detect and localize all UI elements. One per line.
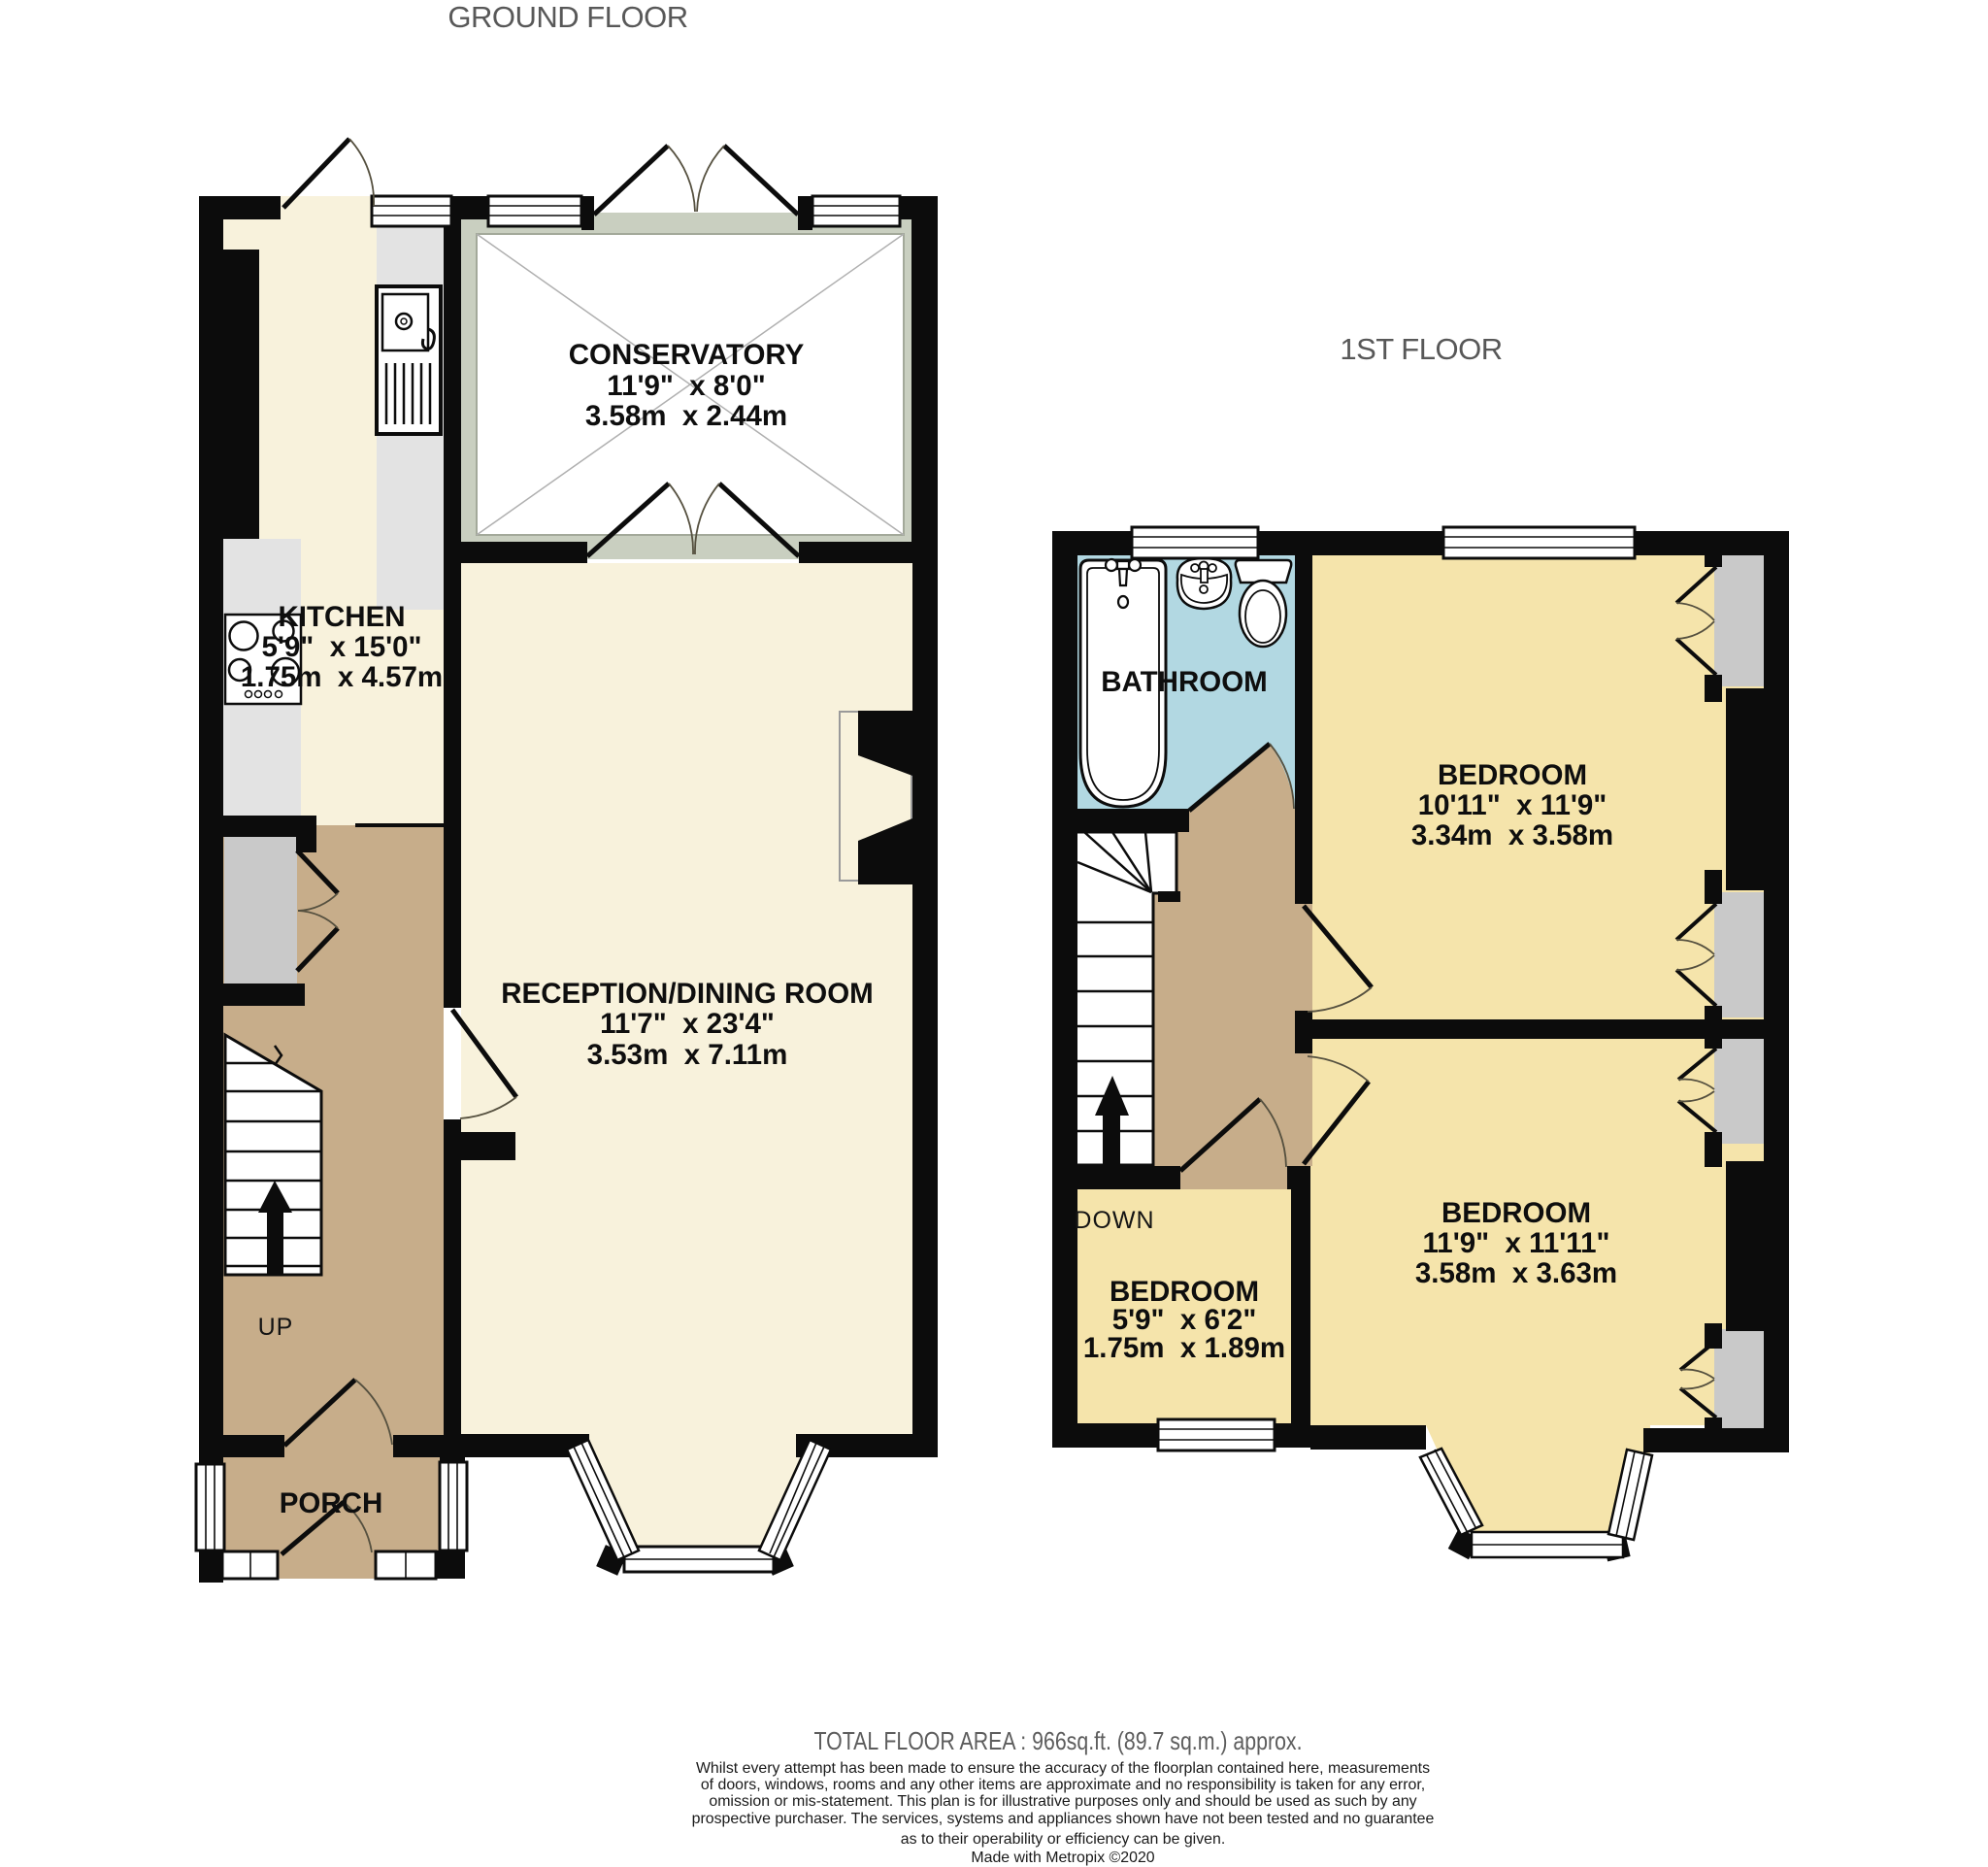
svg-text:1ST FLOOR: 1ST FLOOR [1340, 332, 1502, 366]
svg-text:11'9" x 8'0": 11'9" x 8'0" [607, 370, 765, 402]
svg-text:GROUND FLOOR: GROUND FLOOR [447, 0, 687, 34]
svg-text:1.75m x 1.89m: 1.75m x 1.89m [1083, 1332, 1285, 1364]
svg-text:omission or mis-statement. Thi: omission or mis-statement. This plan is … [709, 1793, 1416, 1810]
svg-text:10'11" x 11'9": 10'11" x 11'9" [1418, 789, 1607, 821]
svg-text:Whilst every attempt has been: Whilst every attempt has been made to en… [696, 1760, 1430, 1777]
svg-text:KITCHEN: KITCHEN [278, 601, 405, 633]
svg-text:3.58m x 2.44m: 3.58m x 2.44m [585, 400, 787, 432]
svg-text:PORCH: PORCH [280, 1487, 383, 1519]
svg-text:BEDROOM: BEDROOM [1441, 1197, 1591, 1229]
svg-text:prospective purchaser. The ser: prospective purchaser. The services, sys… [692, 1811, 1435, 1827]
svg-text:5'9" x 15'0": 5'9" x 15'0" [261, 631, 421, 663]
svg-text:TOTAL FLOOR AREA : 966sq.ft. (: TOTAL FLOOR AREA : 966sq.ft. (89.7 sq.m.… [814, 1726, 1303, 1755]
svg-text:Made with Metropix ©2020: Made with Metropix ©2020 [971, 1850, 1154, 1866]
svg-text:11'7" x 23'4": 11'7" x 23'4" [600, 1008, 775, 1040]
svg-text:of doors, windows, rooms and a: of doors, windows, rooms and any other i… [701, 1777, 1425, 1793]
svg-text:RECEPTION/DINING ROOM: RECEPTION/DINING ROOM [501, 978, 874, 1010]
svg-text:BEDROOM: BEDROOM [1438, 759, 1587, 791]
svg-text:3.34m x 3.58m: 3.34m x 3.58m [1411, 819, 1613, 851]
svg-text:1.75m x 4.57m: 1.75m x 4.57m [241, 661, 443, 693]
svg-text:11'9" x 11'11": 11'9" x 11'11" [1423, 1227, 1610, 1259]
svg-text:3.58m x 3.63m: 3.58m x 3.63m [1415, 1257, 1617, 1289]
svg-text:as to their operability or eff: as to their operability or efficiency ca… [901, 1831, 1225, 1848]
svg-text:CONSERVATORY: CONSERVATORY [569, 339, 805, 371]
svg-text:DOWN: DOWN [1074, 1207, 1154, 1234]
svg-text:UP: UP [258, 1314, 294, 1341]
svg-text:3.53m x 7.11m: 3.53m x 7.11m [587, 1039, 788, 1071]
svg-text:BATHROOM: BATHROOM [1101, 666, 1268, 698]
